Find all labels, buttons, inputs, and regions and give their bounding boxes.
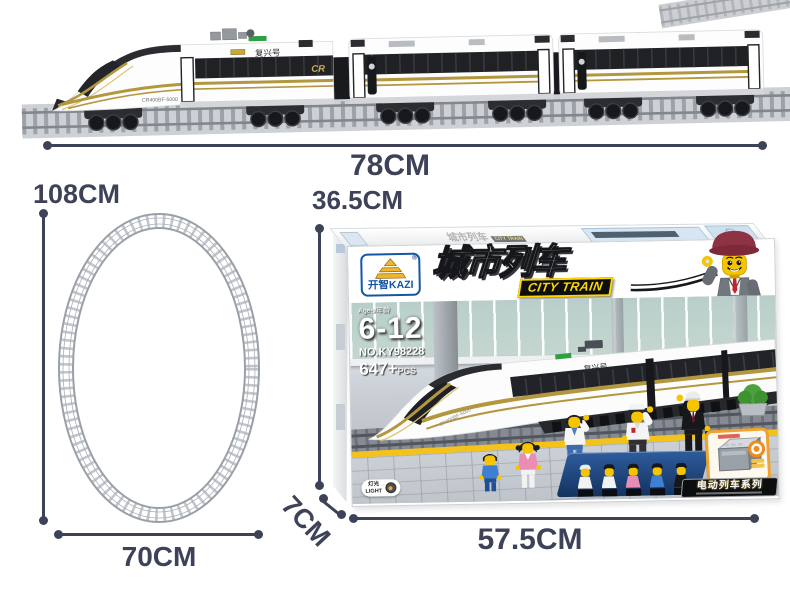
series-name: 电动列车系列 [696, 480, 763, 491]
series-subtext-bar [696, 492, 762, 495]
cr-logo: CR [311, 64, 325, 75]
train-car-rear [559, 30, 764, 100]
piece-unit: PCS [397, 365, 416, 375]
series-banner: 电动列车系列 [681, 477, 779, 498]
box-top-title-en: CITY TRAIN [491, 236, 528, 242]
train-side-marking: CR400BF-5000 [142, 97, 178, 104]
box-side-face [333, 234, 348, 502]
minifig-boy [478, 450, 503, 494]
dim-line-loop-width [59, 533, 259, 536]
brand-name: 开智KAZI [363, 280, 419, 292]
brand-cn: 开智 [368, 279, 389, 291]
train-car-front: 复兴号 CR400BF-5000 CR [50, 26, 334, 111]
minifig-bust [624, 464, 642, 496]
train-car-middle [349, 34, 554, 104]
age-label: Ages/年龄 [358, 305, 424, 316]
kazi-logo: ® 开智KAZI [360, 253, 421, 297]
product-box: 城市列车 CITY TRAIN ® [330, 226, 776, 508]
dim-dot [337, 510, 346, 519]
dim-label-box-height: 36.5CM [312, 185, 403, 216]
registered-mark: ® [412, 255, 417, 262]
dim-dot [315, 481, 324, 490]
dim-line-box-width [354, 517, 754, 520]
background-track [658, 0, 790, 28]
light-switch-icon [385, 482, 396, 493]
dim-line-loop-height [42, 213, 45, 520]
dim-dot [319, 494, 328, 503]
train-roof-marking: 复兴号 [255, 48, 281, 59]
brand-en: KAZI [389, 279, 414, 291]
dim-dot [758, 141, 767, 150]
light-feature-badge: 灯光LIGHT [361, 479, 400, 497]
box-top-kazi-mark [340, 232, 369, 246]
minifig-girl-pink [515, 437, 542, 493]
age-range: 6-12 [358, 315, 424, 345]
dim-dot [39, 209, 48, 218]
minifig-bust [648, 463, 666, 495]
box-scene: 复兴号 CR400BF-5000 [349, 295, 779, 504]
dim-line-train-length [48, 144, 764, 147]
dim-dot [43, 141, 52, 150]
dim-dot [54, 530, 63, 539]
dim-line-box-height [318, 228, 321, 484]
box-top-title-cn: 城市列车 [443, 232, 492, 243]
dim-label-loop-width: 70CM [109, 541, 209, 573]
battery-box-panel [705, 427, 772, 484]
box-title: 城市列车 CITY TRAIN [432, 242, 683, 301]
box-title-en: CITY TRAIN [517, 277, 613, 298]
dim-dot [254, 530, 263, 539]
train-photo: 复兴号 CR400BF-5000 CR [0, 0, 790, 140]
minifig-bust [600, 464, 618, 496]
item-number: NO.KY98228 [359, 345, 425, 358]
bush-planter [733, 381, 774, 418]
box-info: Ages/年龄 6-12 NO.KY98228 647+PCS [358, 305, 425, 380]
dim-dot [349, 514, 358, 523]
battery-box-icon [708, 430, 768, 481]
light-label-en: LIGHT [365, 488, 382, 494]
piece-count: 647+ [359, 359, 398, 379]
box-header: ® 开智KAZI 城市列车 CITY TRAIN [348, 239, 775, 303]
kazi-pyramid-icon [374, 258, 406, 280]
oval-track-loop [48, 203, 270, 533]
dim-dot [39, 516, 48, 525]
minifig-bust [576, 465, 594, 497]
dim-dot [750, 514, 759, 523]
dim-label-box-width: 57.5CM [455, 523, 605, 557]
box-front-face: ® 开智KAZI 城市列车 CITY TRAIN [347, 238, 780, 507]
light-label-cn: 灯光 [365, 482, 382, 488]
dim-dot [315, 224, 324, 233]
product-dimensions-image: 复兴号 CR400BF-5000 CR [0, 0, 790, 604]
dim-label-train-length: 78CM [325, 149, 455, 183]
